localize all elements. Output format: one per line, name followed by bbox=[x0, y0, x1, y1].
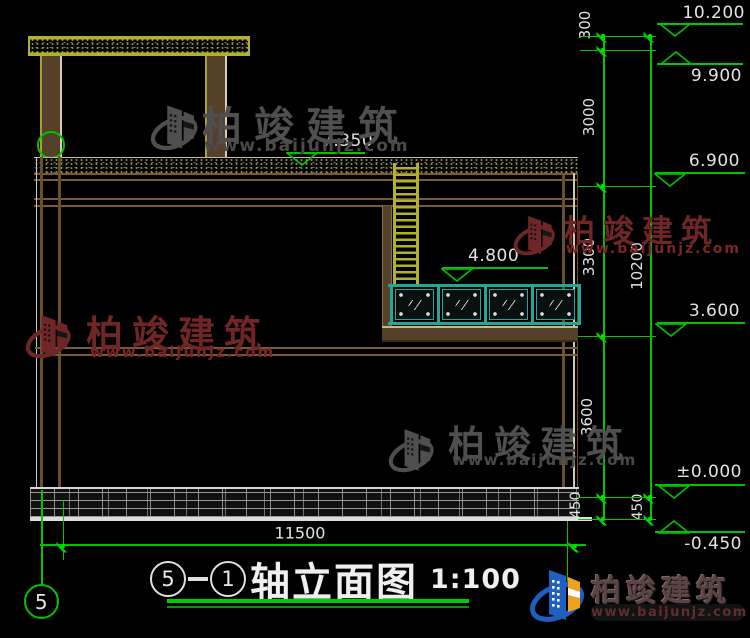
watermark-url: www.baijunjz.com bbox=[90, 343, 275, 361]
railing-mullion bbox=[578, 284, 581, 325]
watermark-logo-icon bbox=[150, 94, 200, 160]
main-roof-slab-edge bbox=[34, 173, 578, 181]
detail-callout-circle bbox=[37, 131, 65, 159]
glass-panel bbox=[442, 289, 481, 320]
dim-tick bbox=[597, 44, 610, 57]
railing-top-rail bbox=[388, 284, 578, 287]
level-label: 3.600 bbox=[689, 301, 740, 321]
title-axis-a: 5 bbox=[161, 567, 174, 591]
watermark-url: www.baijunjz.com bbox=[566, 241, 741, 257]
title-underline-thick bbox=[167, 599, 469, 603]
dim-tick bbox=[597, 330, 610, 343]
railing-mullion bbox=[531, 284, 534, 325]
bottom-dim-label: 11500 bbox=[275, 524, 326, 543]
level-triangle-icon bbox=[658, 484, 690, 503]
dim-tick bbox=[644, 30, 657, 43]
glass-hatch-mark bbox=[408, 300, 421, 310]
extension-line bbox=[578, 186, 656, 187]
ground-line bbox=[30, 517, 592, 521]
railing-mullion bbox=[390, 284, 393, 325]
bottom-dimension-line bbox=[40, 544, 586, 546]
glass-panel bbox=[489, 289, 528, 320]
level-triangle-icon bbox=[441, 267, 473, 286]
level-triangle-icon bbox=[660, 50, 692, 69]
railing-mullion bbox=[484, 284, 487, 325]
level-label: 6.900 bbox=[689, 151, 740, 171]
level-label: 9.900 bbox=[691, 66, 742, 86]
level-label: ±0.000 bbox=[676, 462, 742, 482]
glass-hatch-mark bbox=[549, 300, 562, 310]
level-label: 4.800 bbox=[468, 246, 519, 266]
dim-chain-b-line bbox=[650, 36, 652, 519]
title-dash bbox=[188, 577, 208, 581]
glass-hatch-mark bbox=[455, 300, 468, 310]
extension-line bbox=[578, 336, 656, 337]
dim-tick bbox=[597, 30, 610, 43]
title-scale: 1:100 bbox=[430, 564, 521, 595]
railing-mullion bbox=[437, 284, 440, 325]
glass-hatch-mark bbox=[502, 300, 515, 310]
title-underline-thin bbox=[167, 606, 469, 608]
watermark-url: www.baijunjz.com bbox=[452, 451, 637, 469]
glass-panel bbox=[395, 289, 434, 320]
stone-plinth bbox=[30, 487, 579, 517]
brand-site: www.baijunjz.com bbox=[591, 604, 745, 621]
level-triangle-icon bbox=[659, 22, 691, 41]
dim-tick bbox=[597, 513, 610, 526]
brand-logo-icon bbox=[529, 562, 587, 632]
axis-bubble-5: 5 bbox=[24, 584, 59, 619]
title-axis-circle-a: 5 bbox=[150, 561, 186, 597]
terrace-floor-slab bbox=[382, 326, 578, 342]
dim-label: 3000 bbox=[580, 98, 598, 136]
axis-5-line bbox=[41, 490, 43, 585]
title-axis-b: 1 bbox=[221, 567, 234, 591]
roof-access-ladder bbox=[393, 163, 419, 284]
watermark-logo-icon bbox=[388, 417, 436, 483]
dim-tick bbox=[644, 513, 657, 526]
level-triangle-icon bbox=[655, 322, 687, 341]
railing-bottom-rail bbox=[388, 322, 578, 325]
watermark-logo-icon bbox=[513, 204, 557, 266]
dim-tick bbox=[569, 540, 582, 553]
brand-logo: 柏竣建筑 www.baijunjz.com bbox=[529, 560, 747, 630]
glass-panel bbox=[536, 289, 575, 320]
dim-tick bbox=[644, 491, 657, 504]
dim-tick bbox=[597, 491, 610, 504]
level-triangle-icon bbox=[654, 172, 686, 191]
dim-tick bbox=[597, 180, 610, 193]
axis-bubble-label: 5 bbox=[35, 590, 48, 614]
level-label: -0.450 bbox=[684, 534, 742, 554]
title-axis-circle-b: 1 bbox=[210, 561, 246, 597]
dim-tick bbox=[57, 540, 70, 553]
watermark-url: www.baijunjz.com bbox=[204, 136, 410, 156]
extension-line bbox=[580, 50, 656, 51]
roof-beam-band bbox=[34, 198, 578, 207]
watermark-logo-icon bbox=[25, 304, 73, 368]
dim-label: 450 bbox=[568, 492, 584, 519]
bulkhead-roof-slab bbox=[28, 36, 250, 56]
elevation-drawing-canvas: 10.2009.9006.9003.600±0.000-0.4507.3504.… bbox=[0, 0, 750, 638]
level-label: 10.200 bbox=[683, 3, 745, 23]
